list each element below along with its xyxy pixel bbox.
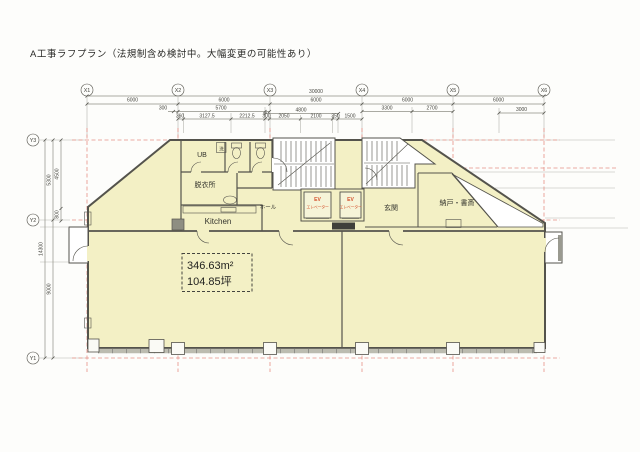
y1-label: Y1 bbox=[30, 356, 37, 362]
page-title: A工事ラフプラン（法規制含め検討中。大幅変更の可能性あり） bbox=[30, 48, 317, 60]
room-label-elevator-1: エレベーター bbox=[306, 204, 328, 210]
east-balcony-rail bbox=[558, 235, 562, 261]
x4-label: X4 bbox=[359, 88, 366, 94]
dim-sub2: 360 bbox=[176, 114, 185, 120]
dim-bay: 6000 bbox=[402, 98, 413, 104]
dim-sub2: 300 bbox=[262, 114, 271, 120]
room-label-ev-1: EV bbox=[314, 197, 321, 203]
y3-label: Y3 bbox=[30, 138, 37, 144]
dim-sub: 3000 bbox=[516, 107, 527, 113]
dim-bay: 6000 bbox=[493, 98, 504, 104]
dim-left-lower: 9000 bbox=[47, 283, 53, 294]
dim-sub2: 1500 bbox=[344, 114, 355, 120]
dim-overall: 30000 bbox=[309, 89, 323, 95]
dim-sub2: 2100 bbox=[310, 114, 321, 120]
dim-left-lower-sub: 800 bbox=[55, 210, 61, 219]
x3-label: X3 bbox=[267, 88, 274, 94]
x5-label: X5 bbox=[450, 88, 457, 94]
dim-sub2: 2212.5 bbox=[239, 114, 255, 120]
room-label-hall: ホール bbox=[260, 204, 277, 211]
pipe-shaft bbox=[332, 223, 355, 230]
room-label-laundry: 洗 bbox=[219, 146, 224, 153]
room-label-ub: UB bbox=[197, 152, 207, 159]
dim-bay: 6000 bbox=[127, 98, 138, 104]
x2-label: X2 bbox=[175, 88, 182, 94]
area-tsubo: 104.85坪 bbox=[187, 275, 232, 288]
dim-sub: 2700 bbox=[426, 106, 437, 112]
dim-sub: 4800 bbox=[295, 108, 306, 114]
x1-label: X1 bbox=[84, 88, 91, 94]
west-balcony bbox=[69, 227, 88, 263]
y2-label: Y2 bbox=[30, 218, 37, 224]
building: UB 洗 脱衣所 Kitchen ホール EV エレベーター EV エレベーター… bbox=[69, 138, 562, 355]
room-label-entrance: 玄関 bbox=[384, 203, 398, 212]
room-label-elevator-2: エレベーター bbox=[339, 204, 361, 210]
duct-shaft bbox=[172, 219, 184, 230]
dim-sub: 300 bbox=[159, 106, 168, 112]
x6-label: X6 bbox=[541, 88, 548, 94]
floor-plan-drawing: A工事ラフプラン（法規制含め検討中。大幅変更の可能性あり） 30000 6000… bbox=[0, 0, 640, 452]
floor-plan-page: A工事ラフプラン（法規制含め検討中。大幅変更の可能性あり） 30000 6000… bbox=[0, 0, 640, 452]
dim-sub: 3300 bbox=[381, 106, 392, 112]
dim-left-total: 14300 bbox=[39, 242, 45, 256]
dim-left-upper: 5300 bbox=[47, 174, 53, 185]
dim-sub2: 3127.5 bbox=[199, 114, 215, 120]
room-label-kitchen: Kitchen bbox=[205, 217, 232, 226]
area-square-meters: 346.63m² bbox=[187, 260, 234, 272]
room-label-ev-2: EV bbox=[347, 197, 354, 203]
dim-sub2: 2050 bbox=[278, 114, 289, 120]
dim-left-upper-sub: 4500 bbox=[55, 168, 61, 179]
room-label-dressing: 脱衣所 bbox=[195, 180, 216, 189]
room-label-storage-study: 納戸・書斎 bbox=[440, 198, 475, 207]
dim-sub: 5700 bbox=[215, 106, 226, 112]
dim-bay: 6000 bbox=[218, 98, 229, 104]
dim-sub2: 350 bbox=[331, 114, 340, 120]
dim-bay: 6000 bbox=[310, 98, 321, 104]
